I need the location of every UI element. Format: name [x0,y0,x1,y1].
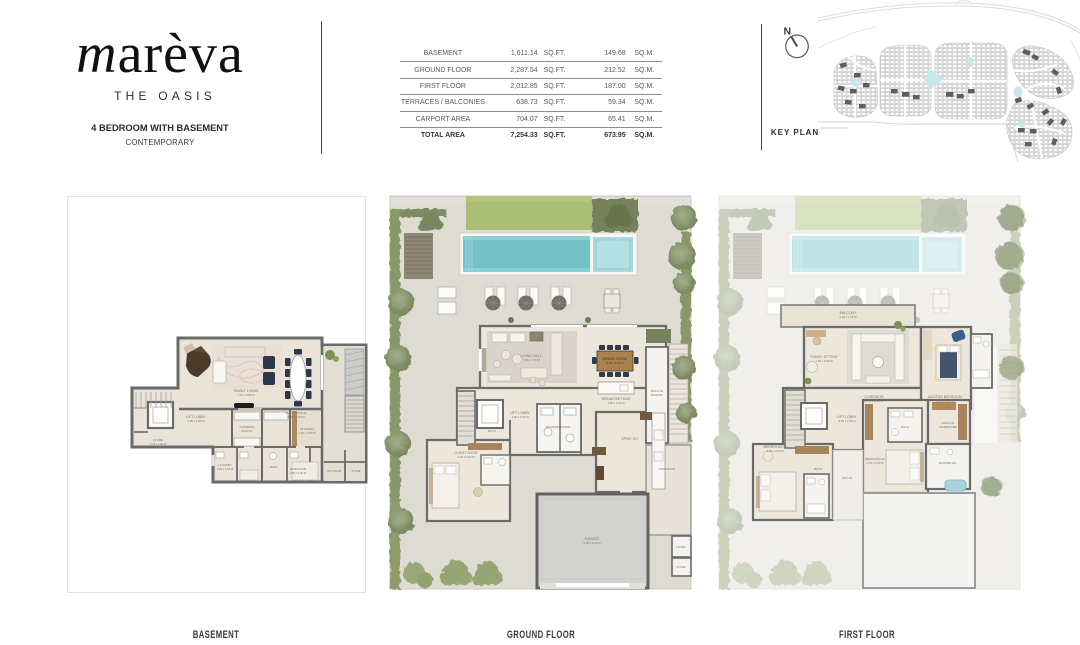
svg-text:MAID ROOM: MAID ROOM [290,467,307,471]
svg-text:BATH: BATH [901,425,909,429]
svg-text:4.80 x 1.50 M: 4.80 x 1.50 M [607,361,625,365]
svg-text:2.45 x 1.60 M: 2.45 x 1.60 M [150,442,166,446]
svg-text:7.95 x 7.71 M: 7.95 x 7.71 M [523,358,541,362]
svg-text:4.25 x 3.50 M: 4.25 x 3.50 M [867,461,885,465]
svg-text:3.00 x 4.00 M: 3.00 x 4.00 M [458,455,476,459]
svg-text:MASTER BA.: MASTER BA. [939,461,957,465]
svg-text:4.35 x 2.50 M: 4.35 x 2.50 M [299,431,317,435]
svg-text:2.80 x 2.40 M: 2.80 x 2.40 M [290,471,306,475]
svg-text:STORE: STORE [677,565,686,569]
svg-text:3.00 x 2.75 M: 3.00 x 2.75 M [512,415,530,419]
svg-text:5.50 x 4.25 M: 5.50 x 4.25 M [937,399,955,403]
svg-text:N: N [784,26,792,38]
svg-text:2.00 x 1.85 M: 2.00 x 1.85 M [217,467,233,471]
svg-text:7.70 x 5.95 M: 7.70 x 5.95 M [238,393,256,397]
svg-text:POWDER ROOM: POWDER ROOM [546,425,570,429]
svg-text:BATH: BATH [488,429,496,433]
svg-text:3.05 x 2.55 M: 3.05 x 2.55 M [188,419,206,423]
svg-text:3.05 x 2.55 M: 3.05 x 2.55 M [839,419,857,423]
svg-text:LIFT ROOM: LIFT ROOM [327,469,341,473]
svg-text:2.75 x 1.55 M: 2.75 x 1.55 M [866,399,884,403]
svg-text:5.85 x 3.30 M: 5.85 x 3.30 M [288,415,306,419]
svg-text:FOYER: FOYER [677,545,686,549]
svg-text:PANTRY: PANTRY [241,429,253,433]
svg-text:WARDROBE: WARDROBE [939,425,957,429]
svg-text:3.60 x 1.00 M: 3.60 x 1.00 M [608,401,626,405]
svg-text:SPICE KIT.: SPICE KIT. [621,437,639,441]
svg-text:6.00 x 6.00 M: 6.00 x 6.00 M [584,541,602,545]
svg-text:STORE: STORE [352,469,361,473]
svg-text:4.30 x 3.60 M: 4.30 x 3.60 M [816,359,834,363]
svg-text:BATH: BATH [814,467,822,471]
svg-text:4.00 x 3.60 M: 4.00 x 3.60 M [767,449,785,453]
svg-text:LAUNDRY: LAUNDRY [218,463,231,467]
svg-text:BATH: BATH [270,465,277,469]
svg-text:PANTRY: PANTRY [651,393,663,397]
svg-text:CORRIDOR: CORRIDOR [659,467,676,471]
svg-text:STORE: STORE [153,438,163,442]
svg-text:WIC-02: WIC-02 [842,476,852,480]
svg-text:9.60 x 1.35 M: 9.60 x 1.35 M [840,315,858,319]
